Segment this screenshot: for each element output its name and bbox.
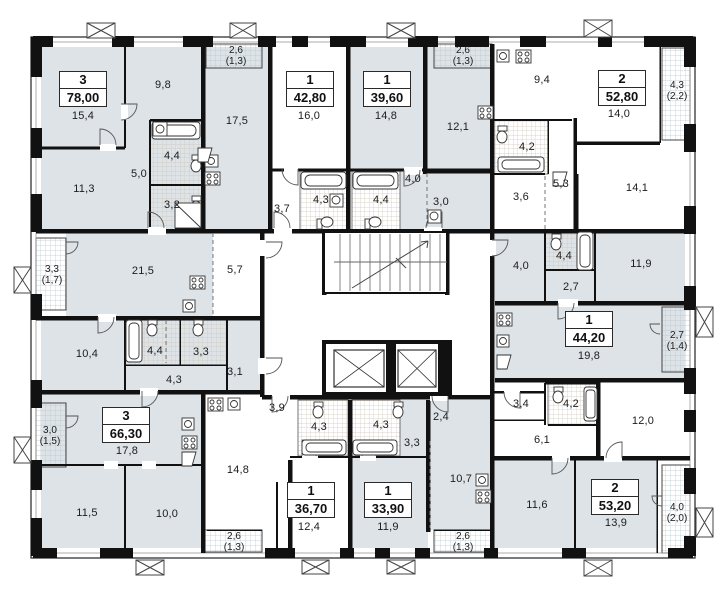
- room-area-label: 4,0: [513, 260, 529, 272]
- apartment-area: 78,00: [60, 89, 106, 106]
- apartment-area: 39,60: [364, 89, 410, 106]
- room-area-label: 4,4: [556, 250, 572, 262]
- apartment-label: 139,60: [363, 71, 411, 107]
- room-area-label: 3,9: [269, 402, 285, 414]
- room-area-label: 5,7: [227, 264, 243, 276]
- balcony-area-value: 2,6: [224, 531, 245, 542]
- balcony-area-value: 3,0: [40, 425, 61, 436]
- balcony-reduced-area-value: (1,7): [42, 275, 63, 286]
- apartment-label: 142,80: [286, 71, 334, 107]
- balcony-reduced-area-value: (1,3): [453, 542, 474, 553]
- apartment-label: 136,70: [287, 482, 335, 518]
- room-area-label: 4,3: [373, 419, 389, 431]
- room-area-label: 9,4: [534, 74, 550, 86]
- room-area-label: 16,0: [298, 110, 320, 122]
- apartment-label: 133,90: [364, 482, 412, 518]
- room-area-label: 14,8: [375, 110, 397, 122]
- room-area-label: 4,4: [147, 345, 163, 357]
- room-area-label: 12,1: [447, 121, 469, 133]
- room-area-label: 3,3: [193, 346, 209, 358]
- room-area-label: 11,5: [76, 507, 97, 519]
- apartment-area: 42,80: [287, 89, 333, 106]
- room-area-label: 4,3: [166, 374, 182, 386]
- balcony-area-label: 2,7(1,4): [667, 330, 688, 352]
- room-area-label: 21,5: [132, 265, 154, 277]
- room-area-label: 10,0: [156, 508, 178, 520]
- balcony-area-label: 2,6(1,3): [453, 45, 474, 67]
- balcony-area-label: 4,0(2,0): [667, 502, 688, 524]
- apartment-label: 252,80: [598, 70, 646, 106]
- room-area-label: 11,9: [377, 521, 398, 533]
- apartment-label: 253,20: [591, 479, 639, 515]
- room-area-label: 10,7: [450, 473, 472, 485]
- apartment-rooms-count: 2: [599, 71, 645, 88]
- room-area-label: 3,6: [513, 191, 529, 203]
- room-area-label: 3,0: [433, 196, 449, 208]
- balcony-area-label: 3,3(1,7): [42, 264, 63, 286]
- apartment-rooms-count: 1: [288, 483, 334, 500]
- room-area-label: 2,7: [563, 281, 579, 293]
- balcony-area-value: 2,6: [226, 45, 247, 56]
- apartment-area: 36,70: [288, 500, 334, 517]
- apartment-rooms-count: 1: [364, 72, 410, 89]
- apartment-area: 66,30: [103, 425, 149, 442]
- balcony-area-label: 2,6(1,3): [224, 531, 245, 553]
- apartment-area: 52,80: [599, 88, 645, 105]
- apartment-area: 44,20: [566, 329, 612, 346]
- room-area-label: 5,0: [131, 168, 147, 180]
- apartment-rooms-count: 1: [365, 483, 411, 500]
- room-area-label: 5,3: [553, 178, 569, 190]
- room-area-label: 10,4: [76, 348, 98, 360]
- room-area-label: 19,8: [578, 350, 600, 362]
- balcony-area-label: 4,3(2,2): [667, 80, 688, 102]
- apartment-rooms-count: 1: [566, 312, 612, 329]
- room-area-label: 14,0: [608, 108, 630, 120]
- apartment-area: 53,20: [592, 497, 638, 514]
- apartment-label: 378,00: [59, 71, 107, 107]
- room-area-label: 6,1: [534, 434, 550, 446]
- plan-labels: 378,00142,80139,60252,80144,20366,30136,…: [0, 0, 726, 600]
- balcony-area-value: 2,7: [667, 330, 688, 341]
- apartment-label: 366,30: [102, 407, 150, 443]
- room-area-label: 3,4: [513, 398, 529, 410]
- balcony-reduced-area-value: (2,0): [667, 513, 688, 524]
- apartment-area: 33,90: [365, 500, 411, 517]
- room-area-label: 13,9: [605, 517, 627, 529]
- room-area-label: 4,4: [373, 194, 389, 206]
- room-area-label: 15,4: [72, 110, 94, 122]
- room-area-label: 12,4: [298, 521, 320, 533]
- room-area-label: 3,1: [227, 366, 243, 378]
- balcony-reduced-area-value: (1,4): [667, 341, 688, 352]
- apartment-rooms-count: 3: [103, 408, 149, 425]
- room-area-label: 14,1: [626, 182, 648, 194]
- room-area-label: 4,4: [164, 150, 180, 162]
- apartment-rooms-count: 1: [287, 72, 333, 89]
- balcony-reduced-area-value: (2,2): [667, 91, 688, 102]
- room-area-label: 2,4: [433, 411, 449, 423]
- balcony-area-value: 4,3: [667, 80, 688, 91]
- room-area-label: 11,9: [630, 258, 651, 270]
- room-area-label: 11,3: [73, 183, 94, 195]
- balcony-area-label: 2,6(1,3): [226, 45, 247, 67]
- apartment-rooms-count: 2: [592, 480, 638, 497]
- balcony-area-value: 4,0: [667, 502, 688, 513]
- balcony-area-label: 2,6(1,3): [453, 531, 474, 553]
- balcony-reduced-area-value: (1,3): [226, 56, 247, 67]
- room-area-label: 3,7: [274, 203, 290, 215]
- room-area-label: 14,8: [227, 464, 249, 476]
- room-area-label: 4,2: [563, 398, 579, 410]
- room-area-label: 4,0: [405, 173, 421, 185]
- room-area-label: 4,3: [313, 194, 329, 206]
- balcony-reduced-area-value: (1,3): [224, 542, 245, 553]
- balcony-area-value: 2,6: [453, 531, 474, 542]
- room-area-label: 3,3: [404, 437, 420, 449]
- room-area-label: 11,6: [526, 499, 547, 511]
- balcony-area-label: 3,0(1,5): [40, 425, 61, 447]
- room-area-label: 17,8: [116, 445, 138, 457]
- floor-plan: 378,00142,80139,60252,80144,20366,30136,…: [0, 0, 726, 600]
- room-area-label: 3,2: [164, 199, 180, 211]
- room-area-label: 4,2: [519, 141, 535, 153]
- balcony-area-value: 2,6: [453, 45, 474, 56]
- balcony-area-value: 3,3: [42, 264, 63, 275]
- balcony-reduced-area-value: (1,3): [453, 56, 474, 67]
- room-area-label: 4,3: [311, 421, 327, 433]
- apartment-label: 144,20: [565, 311, 613, 347]
- room-area-label: 12,0: [632, 415, 654, 427]
- room-area-label: 17,5: [226, 115, 248, 127]
- apartment-rooms-count: 3: [60, 72, 106, 89]
- room-area-label: 9,8: [155, 79, 171, 91]
- balcony-reduced-area-value: (1,5): [40, 436, 61, 447]
